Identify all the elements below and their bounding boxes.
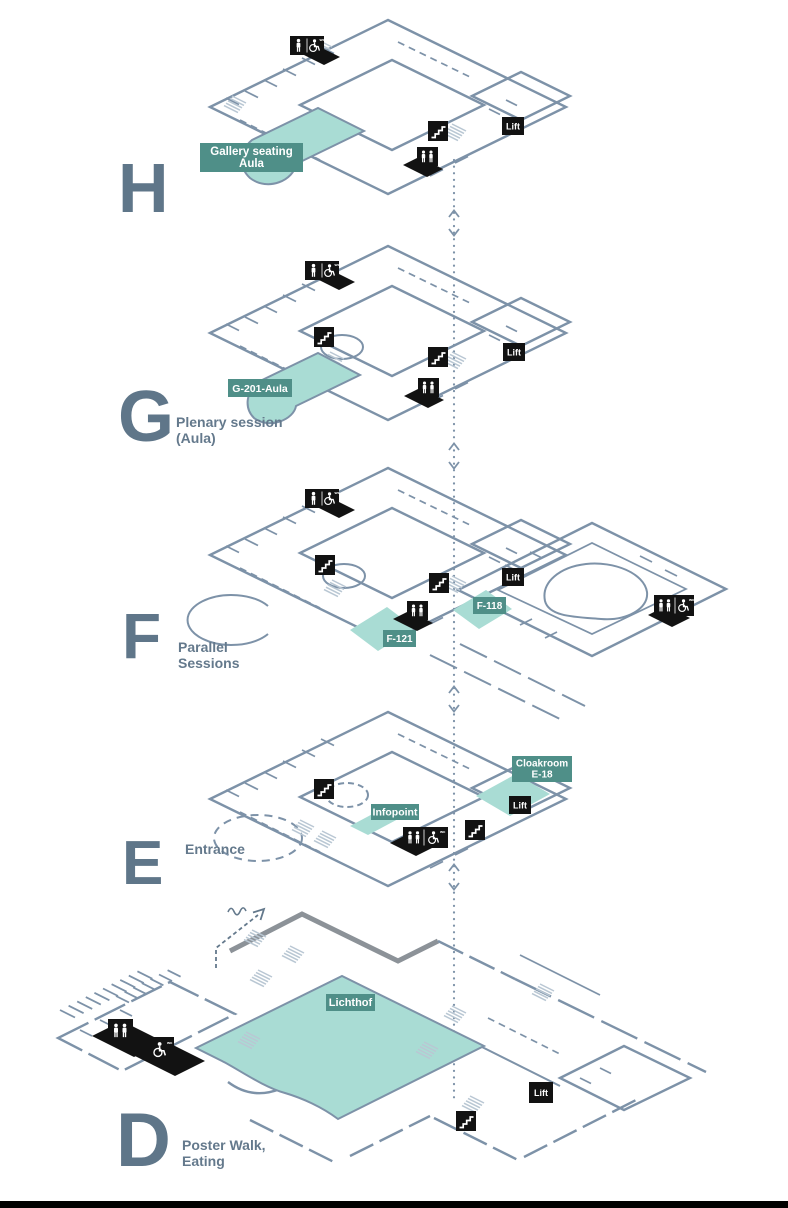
- stair-tread: [292, 820, 314, 837]
- lift-label: Lift: [507, 348, 521, 358]
- bottom-border: [0, 1201, 788, 1208]
- room-label-infopoint: Infopoint: [371, 804, 419, 820]
- floor-h: Gallery seating Aula wc Lift H: [118, 20, 570, 227]
- stair-tread: [532, 984, 554, 1001]
- stair-tread: [462, 1096, 484, 1113]
- room-label-text: E-18: [531, 770, 553, 781]
- room-label-lichthof: Lichthof: [326, 994, 375, 1011]
- wc-accessible-icon: wc: [305, 489, 355, 518]
- wc-accessible-icon: wc: [648, 595, 695, 627]
- stair-tread: [444, 1006, 466, 1023]
- wc-icon: [404, 378, 444, 408]
- room-label-f-121: F-121: [383, 630, 416, 647]
- lift-label: Lift: [506, 122, 520, 132]
- floor-letter-f: F: [122, 600, 161, 672]
- room-label-text: Gallery seating: [210, 146, 292, 158]
- stairs-icon: [456, 1111, 476, 1131]
- wc-superscript: wc: [334, 490, 341, 495]
- wc-superscript: wc: [439, 829, 446, 834]
- stair-tread: [314, 831, 336, 848]
- room-label-g-201-aula: G-201-Aula: [228, 379, 292, 397]
- floor-letter-d: D: [116, 1098, 171, 1183]
- room-label-text: Aula: [239, 158, 265, 170]
- lift-badge: Lift: [502, 117, 524, 135]
- floor-d: Lichthof wc Lift: [58, 908, 706, 1183]
- floor-description: Sessions: [178, 655, 240, 671]
- room-label-text: Lichthof: [329, 997, 373, 1009]
- floor-letter-h: H: [118, 149, 169, 227]
- floor-plan-map: Gallery seating Aula wc Lift H: [0, 0, 788, 1208]
- lift-badge: Lift: [529, 1082, 553, 1103]
- wc-superscript: wc: [334, 262, 341, 267]
- floor-letter-e: E: [122, 829, 163, 898]
- wc-superscript: wc: [319, 37, 326, 42]
- lift-label: Lift: [513, 801, 527, 811]
- room-label-text: F-118: [477, 601, 503, 612]
- stairs-icon: [314, 779, 334, 799]
- lift-badge: Lift: [509, 796, 531, 814]
- floor-description: (Aula): [176, 430, 216, 446]
- wc-accessible-icon: wc: [390, 827, 448, 856]
- stairs-icon: [428, 347, 448, 367]
- lift-badge: Lift: [503, 343, 525, 361]
- lift-label: Lift: [534, 1088, 548, 1098]
- floor-e: Cloakroom E-18 Infopoint Lift wc E Entra…: [122, 712, 572, 898]
- stair-tread: [250, 970, 272, 987]
- room-label-text: F-121: [386, 634, 413, 645]
- room-label-text: Cloakroom: [516, 759, 568, 770]
- room-label-cloakroom: Cloakroom E-18: [512, 756, 572, 782]
- squiggle-icon: [228, 908, 246, 915]
- room-label-text: Infopoint: [373, 807, 418, 819]
- stairs-icon: [315, 555, 335, 575]
- lift-label: Lift: [506, 573, 520, 583]
- floor-description: Entrance: [185, 841, 245, 857]
- room-label-f-118: F-118: [473, 597, 506, 614]
- chevron-up-icon: [449, 444, 459, 451]
- room-label-gallery-seating-aula: Gallery seating Aula: [200, 143, 303, 172]
- lift-badge: Lift: [502, 568, 524, 586]
- stairs-icon: [314, 327, 334, 347]
- stair-tread: [282, 946, 304, 963]
- floor-f: F-121 F-118 wc Lift: [122, 468, 726, 719]
- floor-g: G-201-Aula wc Lift G Plenary session (Au…: [118, 246, 570, 457]
- chevron-up-icon: [449, 865, 459, 872]
- stairs-icon: [429, 573, 449, 593]
- stairs-icon: [428, 121, 448, 141]
- floor-description: Plenary session: [176, 414, 283, 430]
- level-connector: [449, 160, 459, 1100]
- floor-description: Eating: [182, 1153, 225, 1169]
- floor-plan-page: Gallery seating Aula wc Lift H: [0, 0, 788, 1208]
- wc-superscript: wc: [688, 597, 695, 602]
- floor-letter-g: G: [118, 377, 174, 457]
- wc-accessible-icon: wc: [290, 36, 340, 65]
- floor-description: Poster Walk,: [182, 1137, 266, 1153]
- wc-superscript: wc: [166, 1040, 173, 1045]
- room-label-text: G-201-Aula: [232, 383, 288, 395]
- stairs-icon: [465, 820, 485, 840]
- chevron-up-icon: [449, 687, 459, 694]
- floor-description: Parallel: [178, 639, 228, 655]
